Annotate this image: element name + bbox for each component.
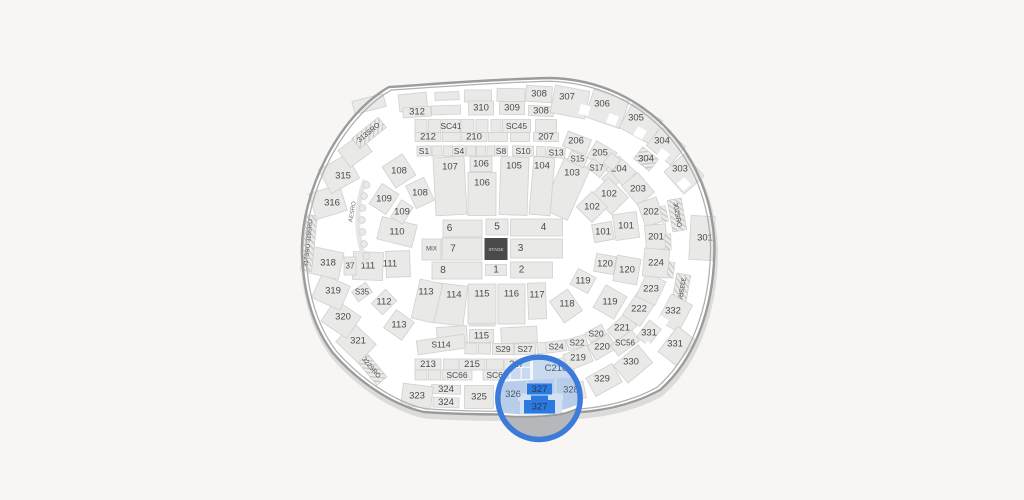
svg-text:327: 327: [532, 402, 548, 413]
svg-text:102: 102: [584, 202, 600, 213]
svg-text:111: 111: [383, 259, 397, 270]
svg-text:109: 109: [394, 207, 410, 218]
svg-text:320: 320: [335, 312, 351, 323]
svg-text:321: 321: [350, 336, 366, 347]
svg-text:323: 323: [409, 391, 425, 402]
svg-text:107: 107: [442, 162, 458, 173]
svg-text:310: 310: [473, 103, 489, 114]
svg-text:SC66: SC66: [446, 370, 468, 380]
svg-text:318: 318: [320, 258, 336, 269]
svg-text:308: 308: [533, 106, 549, 117]
svg-text:221: 221: [614, 323, 630, 334]
svg-text:S1: S1: [419, 146, 430, 156]
svg-text:8: 8: [440, 265, 446, 276]
svg-text:S24: S24: [548, 342, 563, 352]
svg-text:S17: S17: [589, 164, 604, 173]
svg-text:210: 210: [466, 132, 482, 143]
svg-text:S114: S114: [431, 340, 450, 350]
svg-text:303: 303: [672, 164, 688, 175]
svg-text:3: 3: [518, 243, 524, 254]
svg-text:327: 327: [532, 384, 548, 395]
svg-text:SC41: SC41: [440, 121, 462, 131]
svg-text:203: 203: [630, 184, 646, 195]
svg-text:219: 219: [570, 353, 586, 364]
svg-text:202: 202: [643, 207, 659, 218]
svg-text:332: 332: [665, 306, 681, 317]
svg-text:206: 206: [568, 136, 584, 147]
svg-text:306: 306: [594, 99, 610, 110]
svg-text:104: 104: [534, 161, 550, 172]
svg-text:115: 115: [474, 289, 489, 300]
svg-text:7: 7: [450, 244, 456, 255]
svg-text:304: 304: [638, 154, 654, 165]
svg-text:MIX: MIX: [426, 247, 437, 253]
svg-text:305: 305: [628, 113, 644, 124]
svg-text:4: 4: [541, 222, 547, 233]
svg-text:SC45: SC45: [506, 121, 528, 131]
svg-text:119: 119: [602, 297, 617, 308]
svg-text:SC56: SC56: [615, 339, 636, 348]
svg-text:304: 304: [654, 136, 670, 147]
svg-text:113: 113: [418, 287, 433, 298]
svg-text:103: 103: [564, 168, 580, 179]
svg-text:324: 324: [438, 397, 454, 408]
svg-text:S15: S15: [570, 155, 585, 164]
svg-text:S35: S35: [355, 288, 370, 297]
svg-text:330: 330: [623, 357, 639, 368]
svg-text:108: 108: [391, 166, 407, 177]
svg-text:108: 108: [412, 188, 428, 199]
svg-text:113: 113: [391, 320, 406, 331]
svg-text:224: 224: [648, 258, 664, 269]
svg-text:201: 201: [648, 232, 664, 243]
svg-text:222: 222: [631, 304, 647, 315]
svg-text:331: 331: [641, 328, 657, 339]
svg-text:213: 213: [420, 359, 436, 370]
svg-text:315: 315: [335, 171, 351, 182]
svg-text:112: 112: [376, 297, 391, 308]
svg-text:119: 119: [575, 276, 590, 287]
svg-text:101: 101: [618, 221, 634, 232]
svg-text:106: 106: [473, 159, 489, 170]
svg-text:115: 115: [474, 331, 489, 342]
svg-text:319: 319: [325, 286, 341, 297]
svg-text:118: 118: [559, 299, 574, 310]
svg-text:S4: S4: [454, 146, 465, 156]
svg-text:329: 329: [594, 374, 610, 385]
svg-text:207: 207: [538, 132, 554, 143]
svg-text:220: 220: [594, 342, 610, 353]
svg-text:309: 309: [504, 103, 520, 114]
svg-text:S22: S22: [569, 338, 584, 348]
svg-text:2: 2: [519, 265, 525, 276]
svg-text:331: 331: [667, 339, 683, 350]
svg-text:312: 312: [409, 107, 425, 118]
svg-text:S29: S29: [495, 344, 510, 354]
svg-text:120: 120: [597, 259, 613, 270]
svg-text:6: 6: [447, 223, 453, 234]
svg-text:5: 5: [494, 222, 500, 233]
svg-text:37: 37: [346, 262, 355, 271]
svg-text:120: 120: [619, 265, 635, 276]
svg-text:316: 316: [324, 198, 340, 209]
svg-text:223: 223: [643, 284, 659, 295]
svg-text:117: 117: [529, 290, 544, 301]
svg-text:116: 116: [504, 289, 519, 300]
svg-text:324: 324: [438, 384, 454, 395]
svg-text:101: 101: [595, 227, 611, 238]
svg-text:106: 106: [474, 178, 490, 189]
svg-text:326: 326: [505, 389, 521, 400]
svg-text:212: 212: [420, 132, 436, 143]
svg-text:STAGE: STAGE: [489, 247, 504, 252]
svg-text:307: 307: [559, 92, 575, 103]
svg-text:110: 110: [389, 227, 404, 238]
svg-text:S27: S27: [517, 344, 532, 354]
svg-text:109: 109: [376, 194, 392, 205]
svg-text:114: 114: [446, 290, 461, 301]
svg-text:S10: S10: [515, 146, 530, 156]
svg-text:S13: S13: [548, 148, 563, 158]
svg-text:105: 105: [506, 161, 522, 172]
svg-text:215: 215: [464, 359, 480, 370]
svg-text:102: 102: [601, 189, 617, 200]
svg-text:325: 325: [471, 392, 487, 403]
svg-text:1: 1: [493, 265, 499, 276]
svg-text:308: 308: [531, 89, 547, 100]
svg-text:S8: S8: [496, 146, 507, 156]
svg-text:205: 205: [592, 148, 608, 159]
